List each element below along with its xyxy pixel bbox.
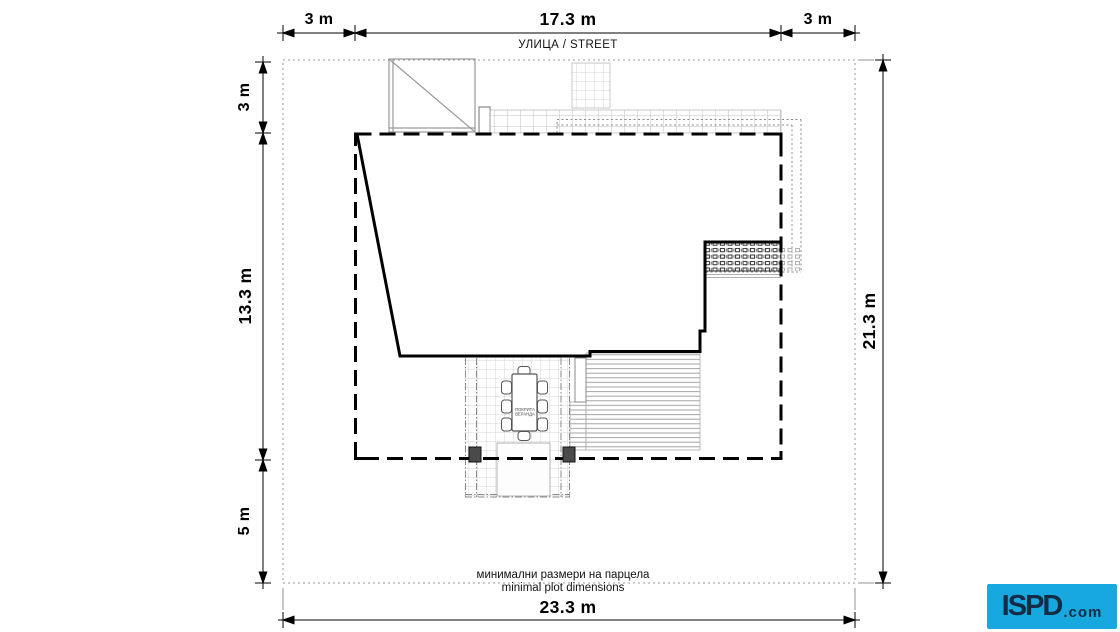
site-plan-page: 3 m 17.3 m 3 m 3 m 13.3 m 5 m 21.3 m 23.… (0, 0, 1120, 632)
rear-deck (570, 353, 700, 450)
caption-bulgarian: минимални размери на парцела (363, 569, 763, 581)
chair (502, 381, 512, 394)
chair (502, 418, 512, 431)
dim-top-right: 3 m (768, 11, 868, 29)
dim-right: 21.3 m (859, 271, 879, 371)
deck-steps (575, 358, 586, 402)
watermark-logo: ISPD .com (987, 584, 1117, 629)
front-pavement (490, 110, 781, 133)
logo-suffix: .com (1063, 605, 1102, 620)
entry-path (572, 63, 610, 108)
balcony-terrace (706, 243, 781, 271)
veranda-label: ПОКРИТА ВЕРАНДА (507, 408, 543, 418)
dim-bottom: 23.3 m (518, 597, 618, 618)
dim-top-left: 3 m (269, 11, 369, 29)
dim-left-bottom: 5 m (236, 471, 256, 571)
caption-english: minimal plot dimensions (363, 582, 763, 594)
balcony-overhang-hatch (782, 246, 800, 271)
dim-left-top: 3 m (236, 47, 256, 147)
driveway (389, 59, 490, 133)
site-plan-canvas (0, 0, 1120, 632)
dim-left-middle: 13.3 m (235, 246, 255, 346)
veranda-label-line2: ВЕРАНДА (507, 413, 543, 418)
street-label: УЛИЦА / STREET (468, 39, 668, 51)
plot-boundary (283, 60, 855, 583)
veranda-steps (497, 443, 550, 496)
chair (538, 418, 548, 431)
balcony-sill (706, 275, 781, 278)
chair (518, 432, 530, 441)
dim-top-center: 17.3 m (518, 9, 618, 30)
dining-table (512, 374, 537, 431)
chair (538, 381, 548, 394)
logo-text: ISPD (1002, 592, 1062, 621)
